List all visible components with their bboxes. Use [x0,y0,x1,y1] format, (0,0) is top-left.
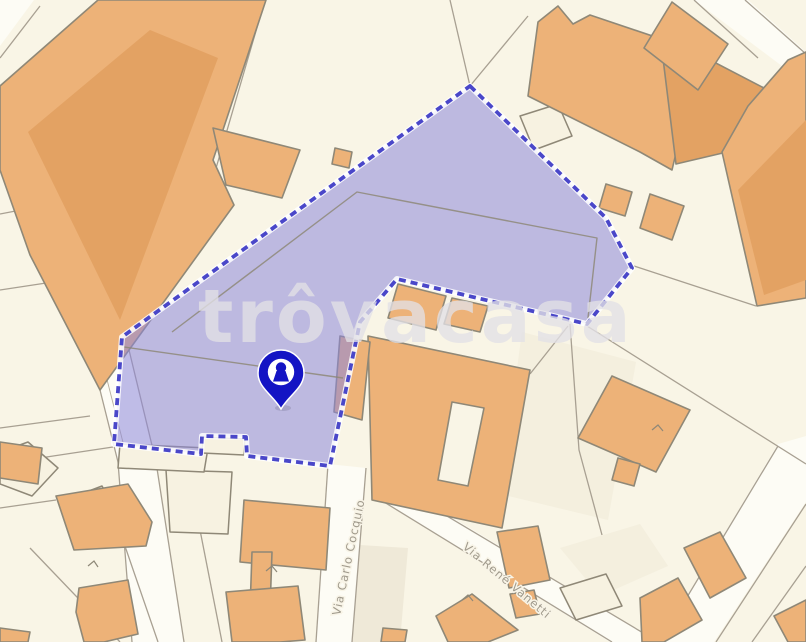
watermark: trôvacasa [198,274,634,360]
map-canvas[interactable]: trôvacasa Via Carlo Cocquio Via René Van… [0,0,806,642]
cadastral-map: trôvacasa Via Carlo Cocquio Via René Van… [0,0,806,642]
